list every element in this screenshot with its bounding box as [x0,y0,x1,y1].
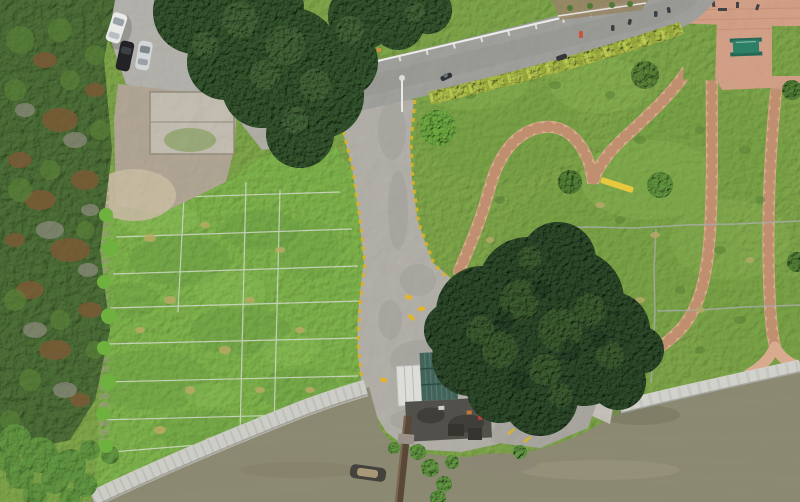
water-glint [520,460,680,480]
plaza-grass-cutout-right [772,26,800,76]
dark-container-a [448,424,464,436]
dark-bush [558,170,582,194]
plaza-grass-cutout-left [683,23,717,80]
pedestrian-red [579,31,583,38]
water-shading [240,462,360,478]
pier-platform [398,433,415,444]
round-bush-left [420,110,456,146]
olive-bush [631,61,659,89]
parked-bike [718,8,727,11]
dark-container-b [468,428,482,440]
picnic-table [730,37,763,56]
moss-patch [164,128,216,152]
debris-shore [462,453,538,473]
round-bush-center [647,172,673,198]
aerial-photo-stage [0,0,800,502]
road-marker [377,48,381,52]
aerial-scene [0,0,800,502]
white-shed [396,365,422,406]
orange-clutter [467,410,472,414]
